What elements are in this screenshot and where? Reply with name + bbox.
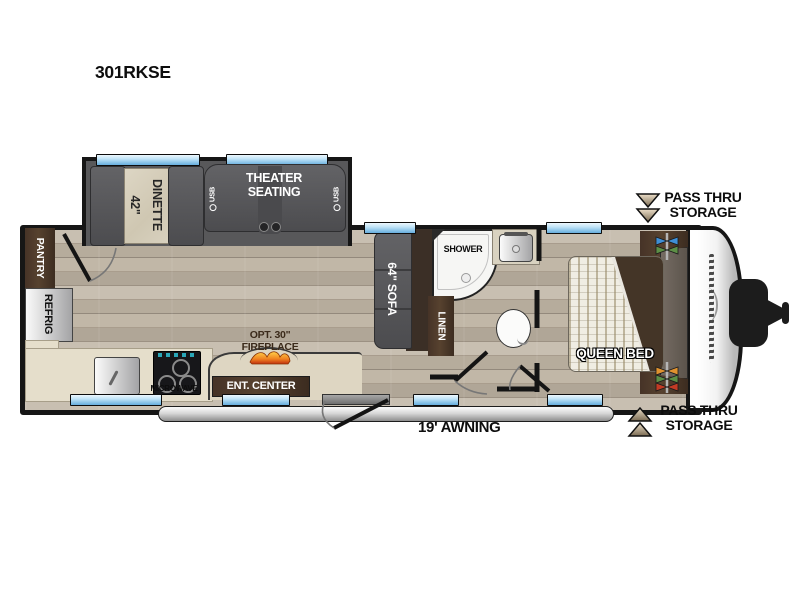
shower-drain-icon (461, 273, 471, 283)
dinette-bench (168, 166, 204, 246)
window (70, 394, 162, 406)
ent-center-label: ENT. CENTER (213, 377, 309, 395)
hitch-ball-icon (782, 302, 789, 324)
bed-headboard (660, 247, 688, 379)
shower-corner (432, 229, 445, 242)
usb-icon (209, 204, 216, 211)
pass-thru-storage-label-top: PASS THRU STORAGE (658, 190, 748, 219)
up-arrow-icon (629, 423, 651, 436)
dinette-size-label: 42" (124, 168, 146, 242)
usb-port-label: USB (204, 176, 220, 222)
window (364, 222, 416, 234)
awning-label: 19' AWNING (418, 419, 528, 436)
shower-label: SHOWER (434, 244, 492, 254)
faucet-icon (504, 232, 528, 236)
theater-label: THEATER SEATING (237, 172, 311, 199)
front-cap-accent (698, 288, 718, 322)
entry-door-opening (322, 394, 390, 405)
toilet (496, 309, 531, 348)
floorplan: 301RKSE 42" DINETTE THEATER SEATING USB … (0, 0, 800, 600)
pass-thru-line1: PASS THRU (652, 403, 746, 418)
window (547, 394, 603, 406)
sofa-label: 64" SOFA (372, 231, 412, 347)
awning-bar (158, 406, 614, 422)
page-title: 301RKSE (95, 62, 171, 83)
stove-knobs-icon (158, 353, 194, 357)
window (413, 394, 459, 406)
window (96, 154, 200, 166)
pass-thru-line2: STORAGE (658, 205, 748, 220)
fireplace-label: FIREPLACE (229, 341, 311, 353)
refrig-label: REFRIG (25, 288, 71, 340)
fireplace-opt-label: OPT. 30" (240, 329, 300, 341)
down-arrow-icon (637, 194, 659, 207)
usb-icon (333, 204, 340, 211)
linen-label: LINEN (428, 296, 454, 356)
sink-drain-icon (512, 245, 520, 253)
window (546, 222, 602, 234)
kitchen-sink (94, 357, 140, 395)
queen-bed-label: QUEEN BED (566, 346, 664, 361)
pantry-label: PANTRY (25, 228, 55, 288)
dinette-label: DINETTE (146, 168, 168, 242)
window (222, 394, 290, 406)
pass-thru-line1: PASS THRU (658, 190, 748, 205)
pass-thru-line2: STORAGE (652, 418, 746, 433)
microwave-label: MICROWAVE (144, 384, 204, 393)
down-arrow-icon (637, 209, 659, 222)
usb-port-label: USB (328, 176, 344, 222)
dinette-bench (90, 166, 126, 246)
brand-logo (709, 254, 714, 363)
bath-sink (499, 234, 533, 262)
toilet-seat-line (517, 331, 529, 345)
pass-thru-storage-label-bottom: PASS THRU STORAGE (652, 403, 746, 432)
